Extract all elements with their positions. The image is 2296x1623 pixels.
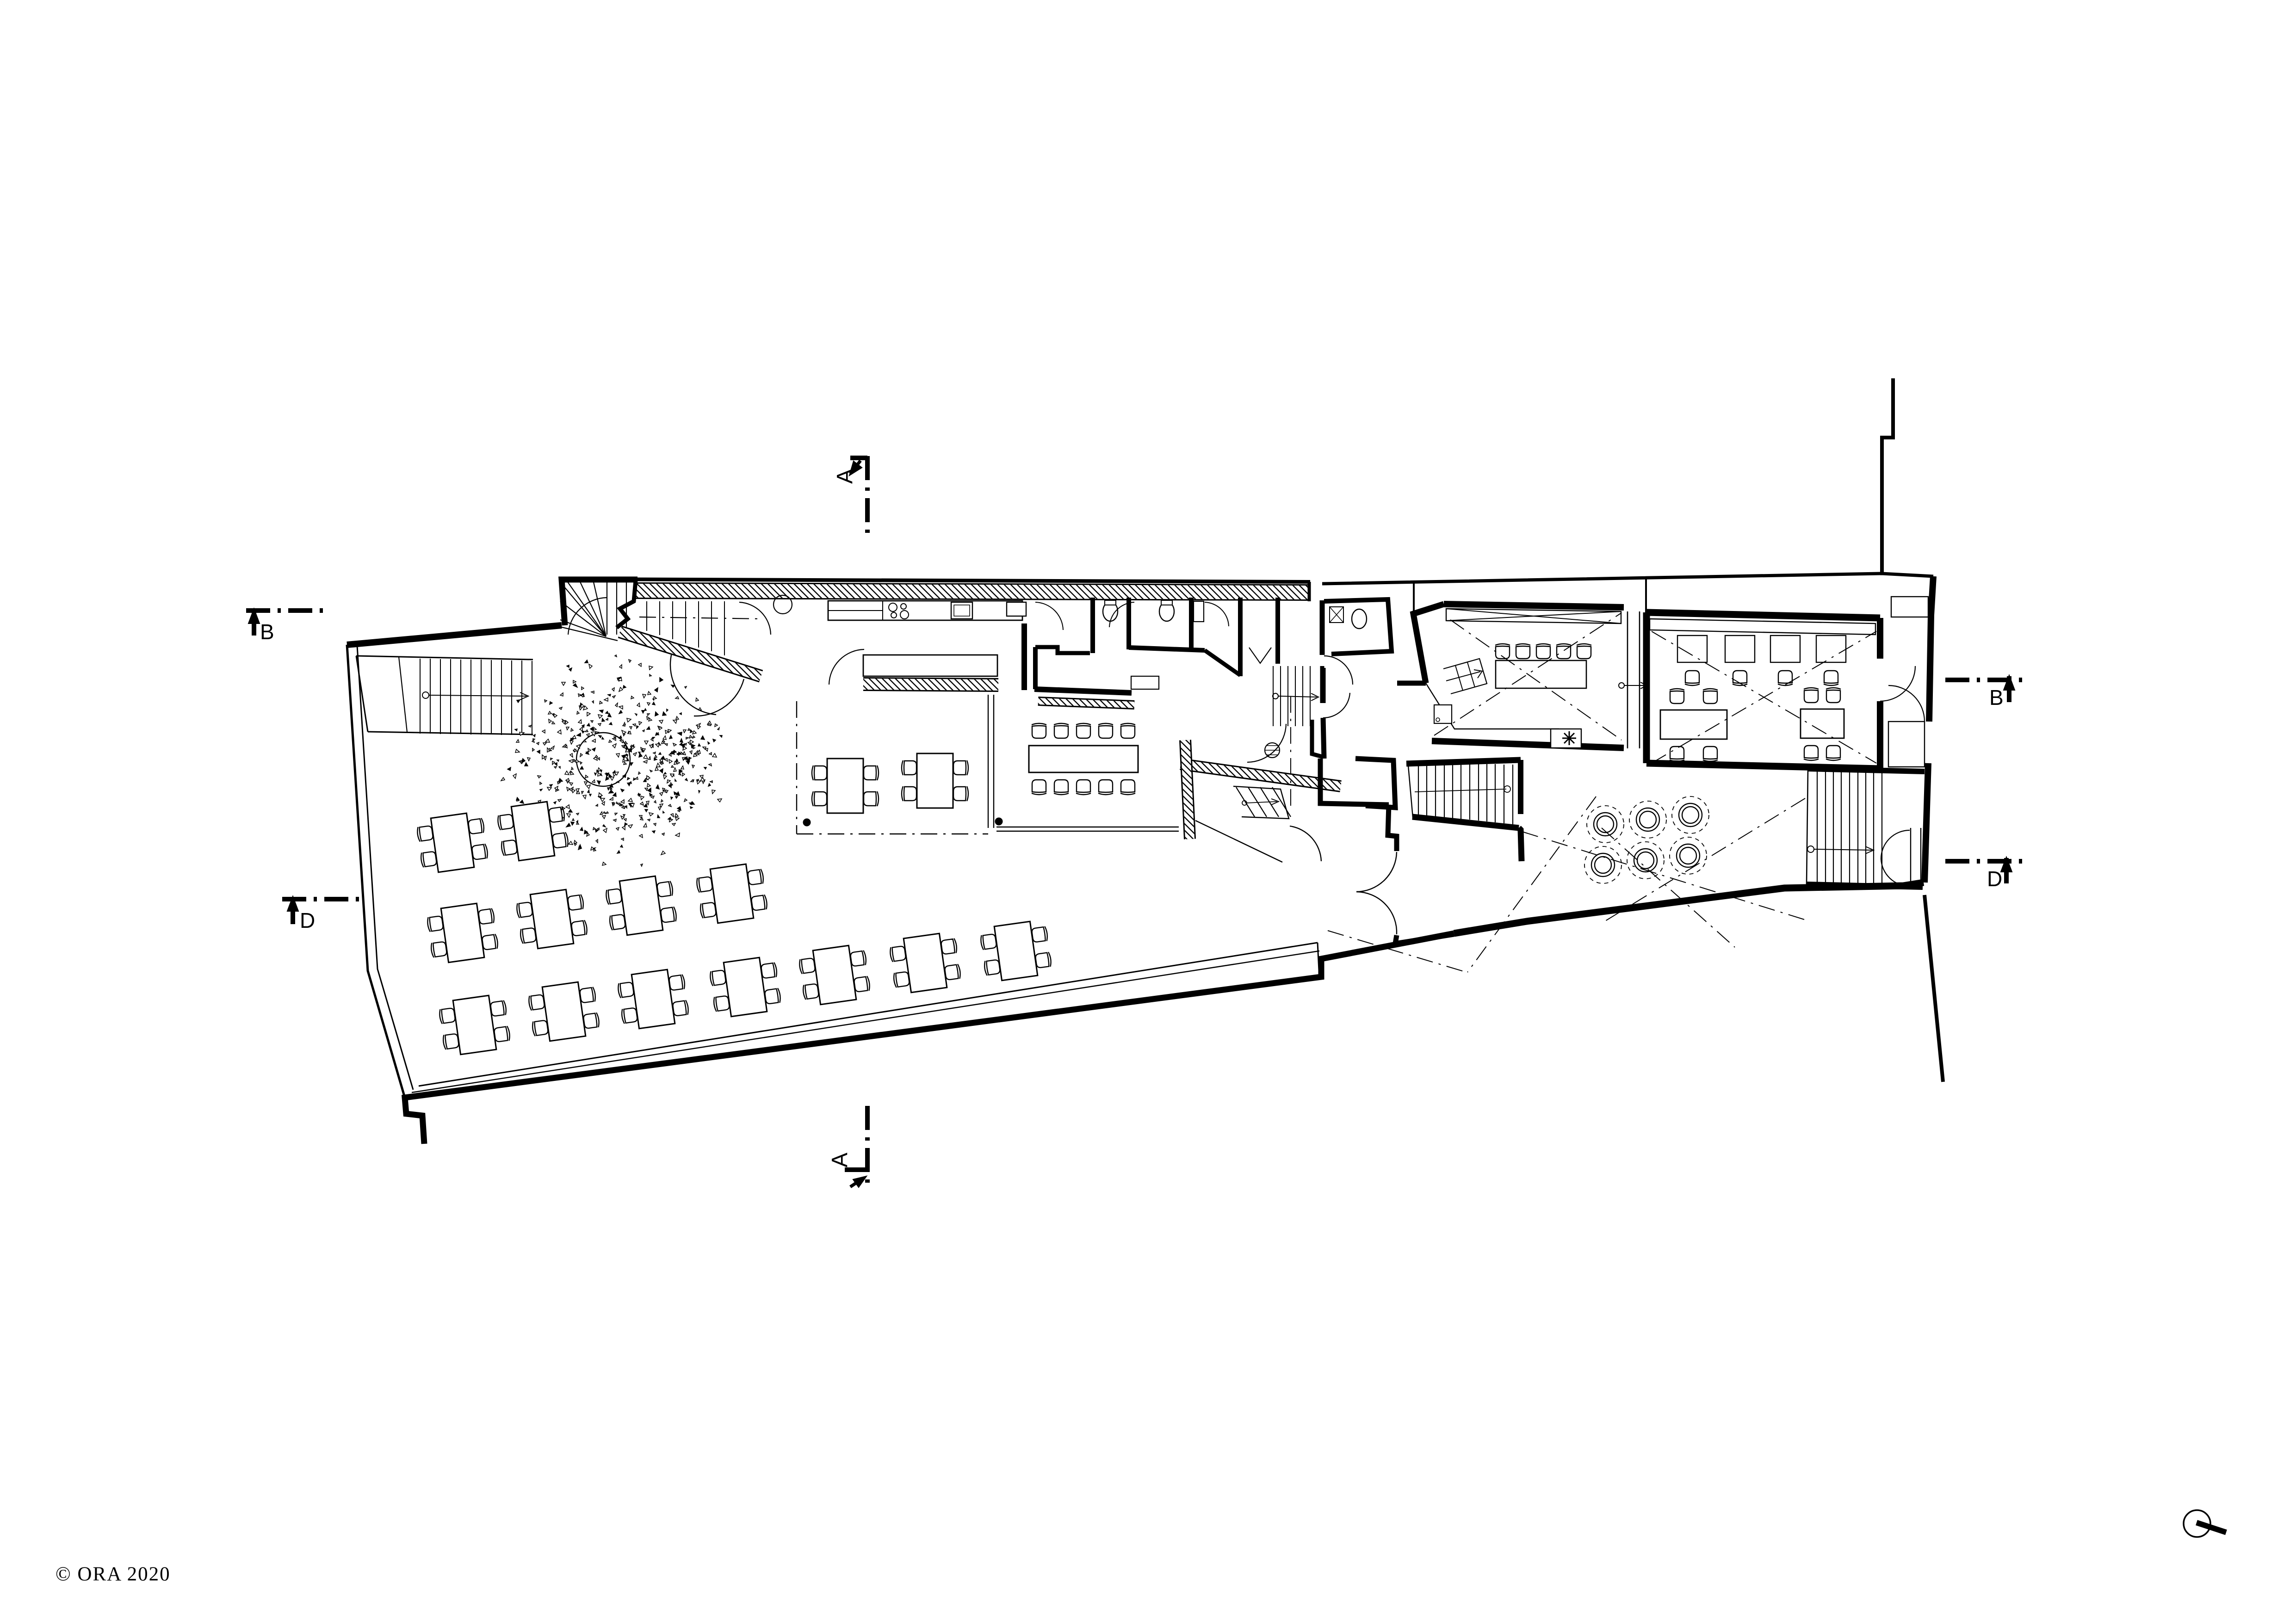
svg-text:B: B [260, 620, 274, 644]
svg-text:B: B [1989, 685, 2004, 710]
svg-text:© ORA 2020: © ORA 2020 [56, 1563, 171, 1585]
svg-text:D: D [300, 908, 315, 932]
svg-text:A: A [833, 469, 857, 484]
svg-text:A: A [828, 1153, 852, 1167]
svg-text:D: D [1987, 867, 2002, 891]
